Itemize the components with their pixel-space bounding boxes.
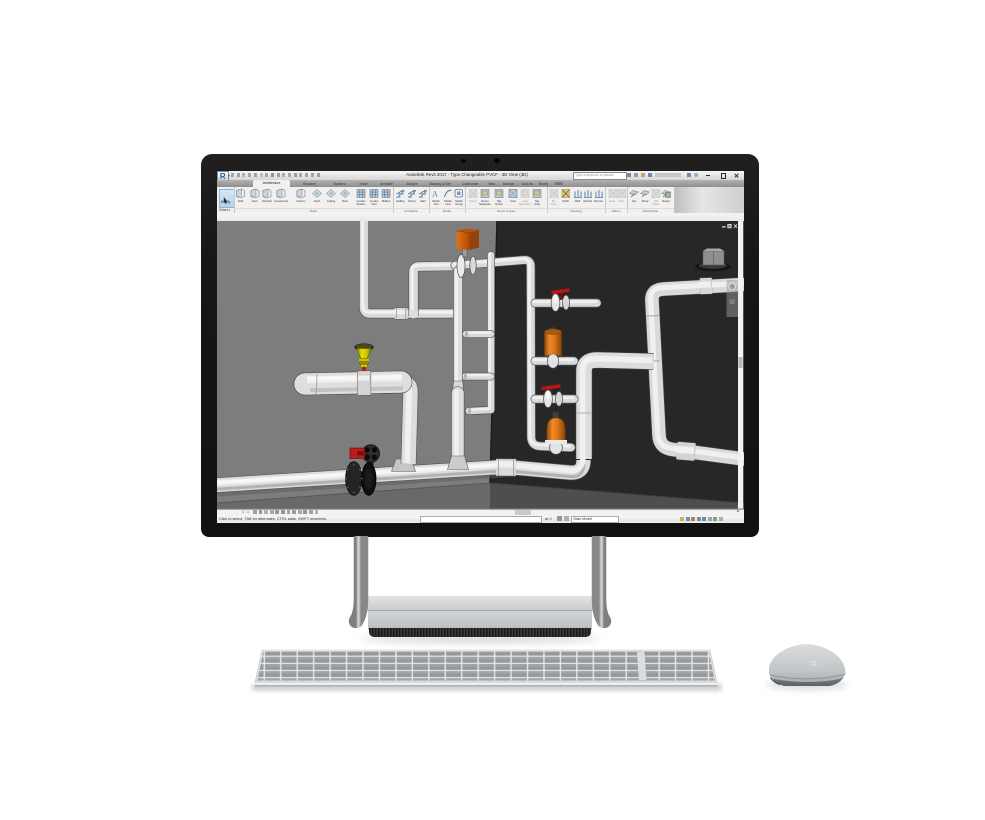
- svg-text:Level: Level: [609, 199, 616, 203]
- svg-text:+: +: [730, 300, 734, 307]
- svg-text:Stair: Stair: [420, 199, 426, 203]
- svg-text:A: A: [432, 190, 438, 199]
- svg-text:Area: Area: [510, 199, 516, 203]
- svg-text:Group: Group: [455, 202, 463, 206]
- svg-text:Column: Column: [296, 199, 306, 203]
- svg-text:Grid: Grid: [371, 202, 377, 206]
- svg-text:Roof: Roof: [314, 199, 320, 203]
- svg-text:Ceiling: Ceiling: [327, 199, 336, 203]
- svg-text:Face: Face: [551, 202, 557, 206]
- svg-text:Mullion: Mullion: [382, 199, 391, 203]
- svg-text:Room: Room: [495, 202, 503, 206]
- svg-text:Ramp: Ramp: [408, 199, 416, 203]
- svg-text:Line: Line: [445, 202, 451, 206]
- svg-text:Plane: Plane: [653, 202, 660, 206]
- svg-text:Wall: Wall: [575, 199, 581, 203]
- svg-text:Door: Door: [252, 199, 258, 203]
- svg-text:Room: Room: [469, 199, 477, 203]
- svg-text:Set: Set: [632, 199, 636, 203]
- svg-text:System: System: [357, 202, 367, 206]
- svg-text:Show: Show: [642, 199, 649, 203]
- svg-text:Grid: Grid: [618, 199, 624, 203]
- svg-text:Viewer: Viewer: [662, 199, 670, 203]
- svg-text:Floor: Floor: [342, 199, 348, 203]
- svg-text:Component: Component: [274, 199, 288, 203]
- svg-text:Vertical: Vertical: [583, 199, 592, 203]
- svg-text:Separator: Separator: [479, 202, 491, 206]
- svg-text:Area: Area: [534, 202, 540, 206]
- svg-text:Wall: Wall: [238, 199, 244, 203]
- svg-text:Shaft: Shaft: [562, 199, 569, 203]
- svg-text:Window: Window: [262, 199, 272, 203]
- svg-text:Railing: Railing: [396, 199, 405, 203]
- svg-text:Dormer: Dormer: [594, 199, 603, 203]
- svg-text:Boundary: Boundary: [519, 202, 531, 206]
- svg-text:Text: Text: [434, 202, 439, 206]
